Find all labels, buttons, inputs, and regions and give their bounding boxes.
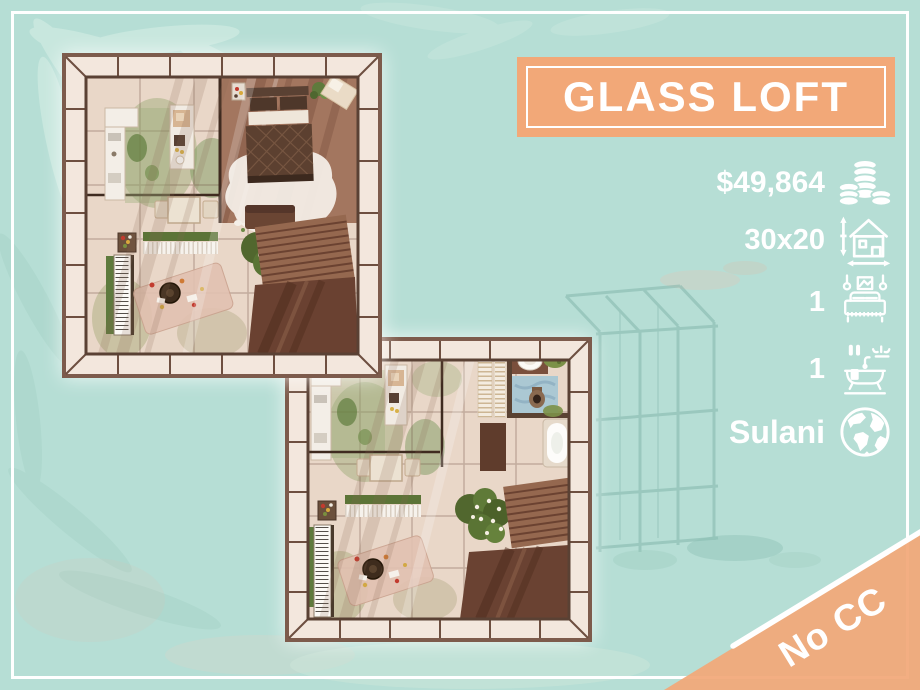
page-title: GLASS LOFT (563, 76, 849, 118)
backdrop-vegetation (613, 535, 821, 570)
floorplan-upper (62, 53, 382, 378)
floorplan-lower (285, 337, 592, 642)
title-banner: GLASS LOFT (517, 57, 895, 137)
